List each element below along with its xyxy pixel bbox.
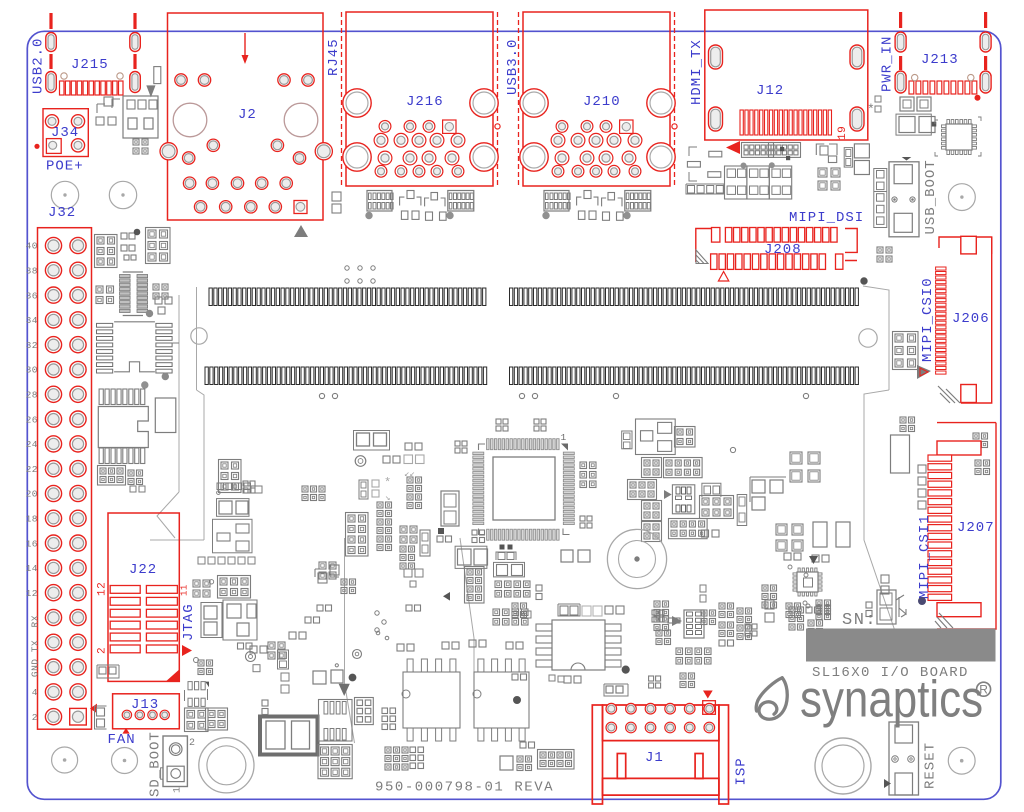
svg-text:1: 1 <box>173 786 184 793</box>
svg-text:32: 32 <box>26 340 38 351</box>
svg-text:ISP: ISP <box>733 757 749 785</box>
svg-text:J2: J2 <box>238 107 257 123</box>
svg-text:RESET: RESET <box>923 742 939 789</box>
svg-text:J1: J1 <box>645 750 664 766</box>
svg-text:SD_BOOT: SD_BOOT <box>148 731 164 797</box>
svg-text:synaptics: synaptics <box>800 670 983 728</box>
svg-text:30: 30 <box>26 365 38 376</box>
svg-text:HDMI_TX: HDMI_TX <box>689 39 705 105</box>
svg-text:22: 22 <box>26 464 38 475</box>
svg-text:J216: J216 <box>406 94 444 110</box>
svg-text:2: 2 <box>32 712 38 723</box>
svg-text:J207: J207 <box>957 520 995 536</box>
svg-text:28: 28 <box>26 390 38 401</box>
svg-text:1: 1 <box>561 432 568 443</box>
svg-text:J32: J32 <box>48 205 76 221</box>
svg-text:J12: J12 <box>756 83 784 99</box>
svg-text:USB3.0: USB3.0 <box>505 39 521 95</box>
svg-text:R: R <box>979 683 988 697</box>
svg-text:*: * <box>384 476 392 490</box>
svg-text:26: 26 <box>26 414 38 425</box>
svg-text:24: 24 <box>26 439 38 450</box>
svg-text:40: 40 <box>26 241 38 252</box>
svg-text:J206: J206 <box>952 311 990 327</box>
svg-text:RX: RX <box>30 615 41 627</box>
svg-text:J210: J210 <box>583 94 621 110</box>
svg-text:TX: TX <box>30 640 41 652</box>
svg-text:POE+: POE+ <box>46 159 84 175</box>
svg-text:FAN: FAN <box>108 732 136 748</box>
svg-text:2: 2 <box>189 738 196 749</box>
svg-text:18: 18 <box>26 514 38 525</box>
svg-text:19: 19 <box>837 126 849 140</box>
svg-text:GND: GND <box>30 658 41 677</box>
svg-text:36: 36 <box>26 290 38 301</box>
svg-text:12: 12 <box>97 582 109 596</box>
svg-text:14: 14 <box>26 563 38 574</box>
svg-text:20: 20 <box>26 489 38 500</box>
svg-text:950-000798-01 REVA: 950-000798-01 REVA <box>375 780 554 796</box>
svg-text:J213: J213 <box>921 52 959 68</box>
svg-text:RJ45: RJ45 <box>326 38 342 76</box>
svg-text:MIPI_CSI0: MIPI_CSI0 <box>920 277 936 362</box>
svg-text:USB_BOOT: USB_BOOT <box>923 159 939 234</box>
svg-text:34: 34 <box>26 315 38 326</box>
svg-text:USB2.0: USB2.0 <box>31 38 47 94</box>
svg-text:4: 4 <box>32 687 38 698</box>
svg-text:J34: J34 <box>51 125 79 141</box>
svg-text:MIPI_CSI1: MIPI_CSI1 <box>917 514 933 599</box>
svg-text:16: 16 <box>26 538 38 549</box>
svg-text:12: 12 <box>26 588 38 599</box>
svg-text:J215: J215 <box>71 57 109 73</box>
svg-text:*: * <box>867 102 876 117</box>
svg-text:38: 38 <box>26 266 38 277</box>
svg-text:2: 2 <box>97 647 109 654</box>
svg-text:J22: J22 <box>129 562 157 578</box>
svg-text:PWR_IN: PWR_IN <box>880 36 896 92</box>
svg-text:JTAG: JTAG <box>181 603 197 641</box>
svg-text:MIPI_DSI: MIPI_DSI <box>789 210 864 226</box>
svg-text:11: 11 <box>180 584 190 596</box>
